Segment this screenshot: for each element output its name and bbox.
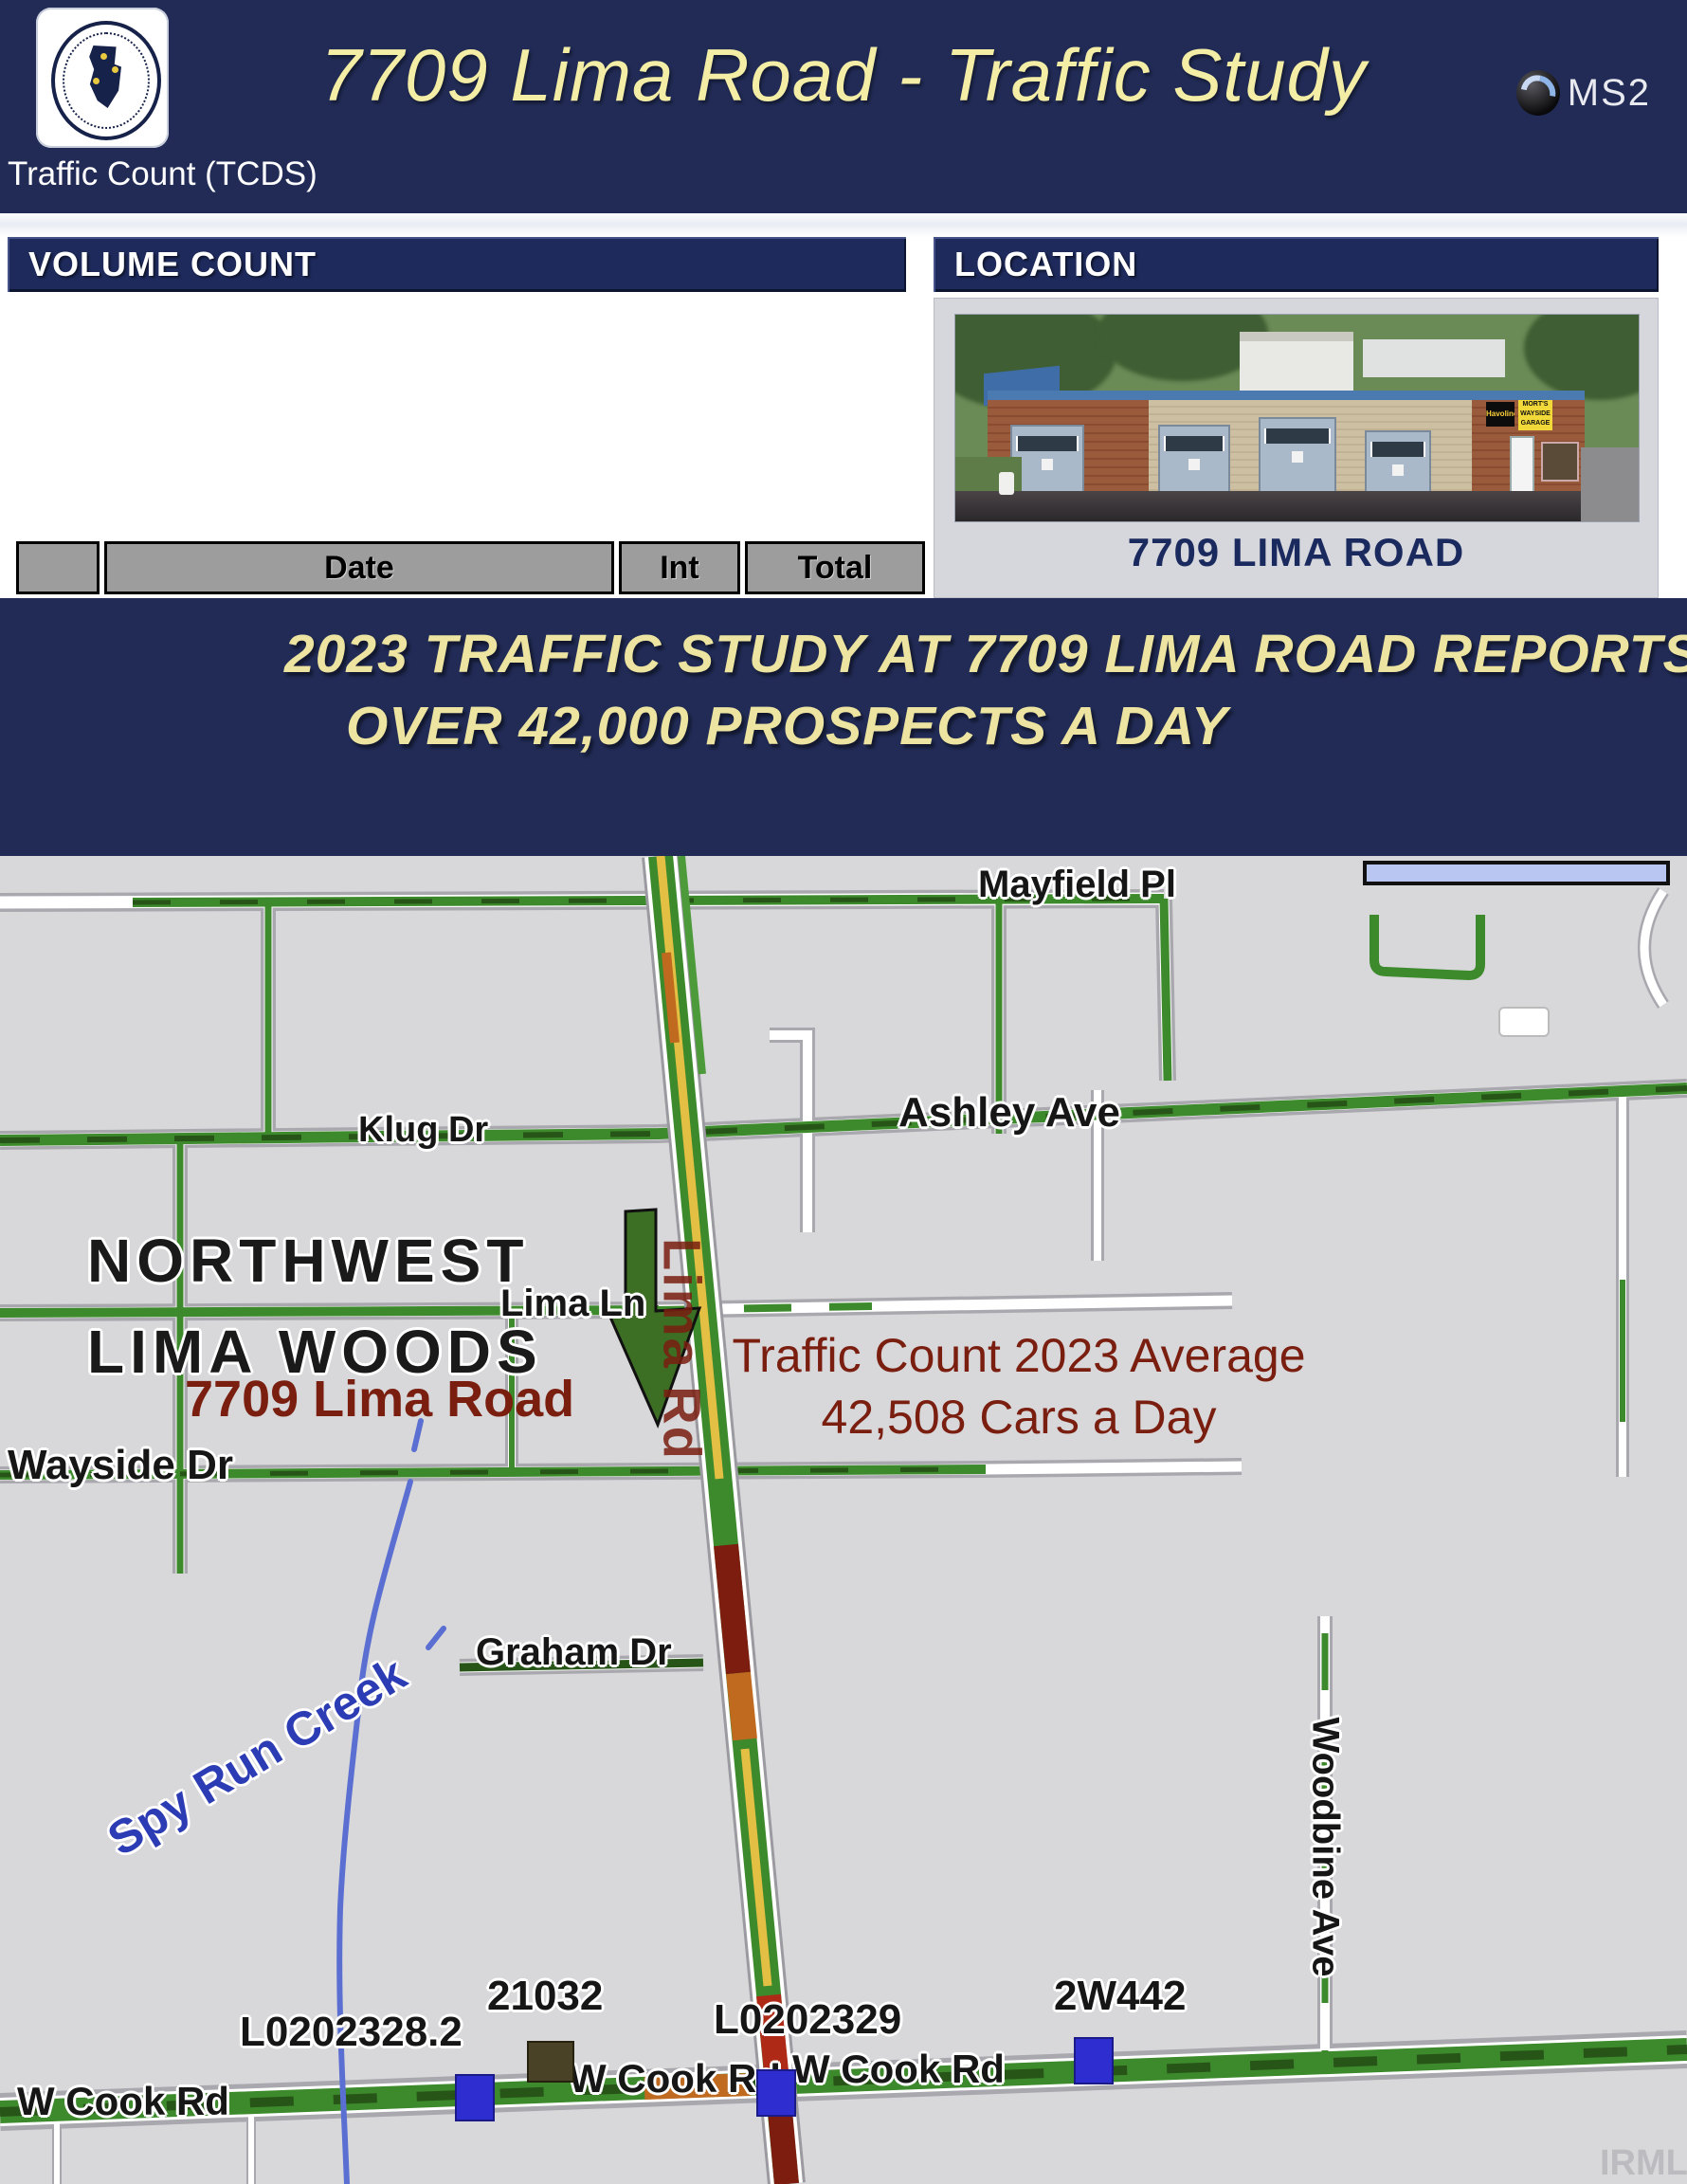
ms2-globe-icon <box>1516 70 1560 116</box>
road-casings <box>0 891 1687 2184</box>
street-label-mayfield: Mayfield Pl <box>978 864 1176 906</box>
total-column-header: Total <box>745 541 925 594</box>
street-label-woodbine: Woodbine Ave <box>1304 1667 1347 2028</box>
page-title: 7709 Lima Road - Traffic Study <box>0 32 1687 118</box>
date-column-header: Date <box>104 541 614 594</box>
building-roofline <box>988 391 1585 400</box>
station-label-2W442: 2W442 <box>1054 1973 1186 2020</box>
street-label-cook-right: W Cook Rd <box>792 2047 1005 2092</box>
station-marker-selected <box>527 2041 574 2083</box>
station-marker <box>1074 2037 1114 2084</box>
entry-door <box>1510 436 1534 495</box>
door-sign <box>1292 451 1303 463</box>
banner-line-1: 2023 TRAFFIC STUDY AT 7709 LIMA ROAD REP… <box>284 623 1687 685</box>
station-label-L0202329: L0202329 <box>714 1996 901 2044</box>
location-header: LOCATION <box>934 237 1659 292</box>
havoline-sign: Havoline <box>1486 402 1515 427</box>
map-artifact-bar <box>1365 863 1668 883</box>
asphalt-lot <box>955 491 1639 521</box>
door-sign <box>1042 459 1053 470</box>
location-caption: 7709 LIMA ROAD <box>934 530 1658 575</box>
garage-door <box>1158 425 1230 495</box>
table-header-row: Date Int Total <box>16 541 925 594</box>
header-bar: 7709 Lima Road - Traffic Study MS2 Traff… <box>0 0 1687 213</box>
ms2-logo-text: MS2 <box>1568 72 1651 115</box>
gravel-drive <box>1581 447 1639 521</box>
street-label-ashley: Ashley Ave <box>898 1089 1120 1137</box>
header-divider <box>0 213 1687 237</box>
location-panel: Havoline MORT'S WAYSIDE GARAGE 7709 LIMA… <box>934 298 1659 598</box>
map-roads <box>0 856 1687 2184</box>
station-label-21032: 21032 <box>487 1973 603 2020</box>
office-window <box>1541 442 1579 482</box>
door-window <box>1370 442 1425 457</box>
white-barrel <box>999 472 1014 495</box>
promo-banner: 2023 TRAFFIC STUDY AT 7709 LIMA ROAD REP… <box>0 598 1687 856</box>
traffic-note-line-2: 42,508 Cars a Day <box>706 1390 1332 1445</box>
street-label-lima-ln: Lima Ln <box>500 1283 645 1325</box>
location-photo: Havoline MORT'S WAYSIDE GARAGE <box>954 314 1640 522</box>
lima-road <box>661 856 787 2184</box>
flyer-page: 7709 Lima Road - Traffic Study MS2 Traff… <box>0 0 1687 2184</box>
area-label-northwest: NORTHWEST <box>87 1226 529 1296</box>
street-label-cook-mid: W Cook Rd <box>569 2056 781 2102</box>
station-label-L0202328-2: L0202328.2 <box>240 2009 463 2056</box>
garage-sign: MORT'S WAYSIDE GARAGE <box>1518 400 1552 430</box>
station-marker <box>756 2069 796 2117</box>
traffic-map: Mayfield Pl Klug Dr Ashley Ave NORTHWEST… <box>0 856 1687 2184</box>
station-marker <box>455 2074 495 2121</box>
ms2-logo: MS2 <box>1516 68 1651 118</box>
poi-label-7709-lima-road: 7709 Lima Road <box>185 1370 574 1429</box>
traffic-note-line-1: Traffic Count 2023 Average <box>706 1328 1332 1383</box>
door-sign <box>1392 464 1404 476</box>
tree-blob <box>1524 314 1640 400</box>
street-label-lima-rd: Lima Rd <box>652 1189 714 1511</box>
door-window <box>1164 436 1224 451</box>
door-window <box>1016 436 1079 451</box>
int-column-header: Int <box>619 541 740 594</box>
door-sign <box>1188 459 1200 470</box>
street-label-graham: Graham Dr <box>476 1631 672 1674</box>
road-dashes <box>0 899 1687 2112</box>
ms2-swoosh-icon <box>1514 68 1562 118</box>
road-greens <box>0 899 1687 2112</box>
banner-line-2: OVER 42,000 PROSPECTS A DAY <box>346 695 1228 757</box>
spy-run-creek <box>339 1421 444 2184</box>
volume-count-header: VOLUME COUNT <box>8 237 906 292</box>
street-label-klug: Klug Dr <box>358 1110 488 1151</box>
icon-column-header <box>16 541 100 594</box>
garage-door <box>1259 417 1336 495</box>
garage-door <box>1365 430 1431 495</box>
irmls-watermark: IRMLS <box>1600 2143 1687 2184</box>
house-shape <box>1240 332 1353 396</box>
door-window <box>1264 428 1331 444</box>
street-label-wayside: Wayside Dr <box>8 1442 233 1489</box>
house-shape <box>1363 339 1505 377</box>
table-head: Date Int Total <box>16 541 925 594</box>
street-label-cook-left: W Cook Rd <box>17 2079 229 2124</box>
road-whites <box>0 891 1687 2184</box>
content-row: VOLUME COUNT Date Int Total Wed 8/9/2023… <box>0 237 1687 598</box>
tcds-label: Traffic Count (TCDS) <box>8 155 317 193</box>
